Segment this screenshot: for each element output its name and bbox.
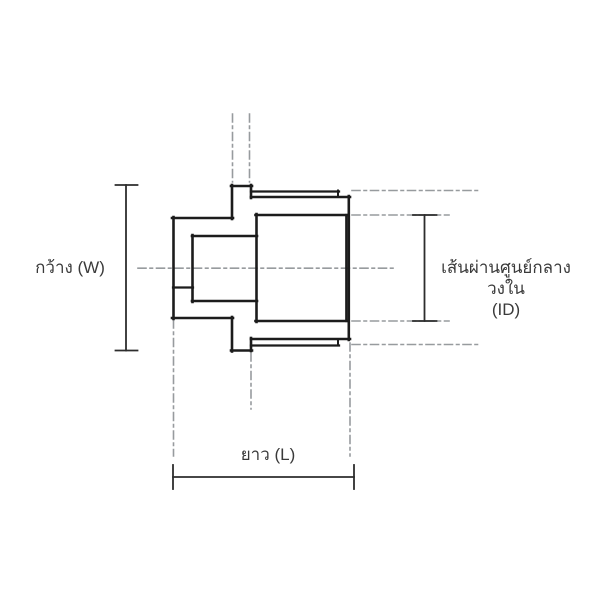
inner-diameter-label: เส้นผ่านศูนย์กลางวงใน (ID) xyxy=(424,257,588,320)
dimension-width xyxy=(116,185,138,351)
inner-diameter-label-line2: (ID) xyxy=(424,299,588,320)
inner-diameter-label-line1: เส้นผ่านศูนย์กลางวงใน xyxy=(424,257,588,299)
width-label: กว้าง (W) xyxy=(22,257,118,278)
dimension-length xyxy=(173,465,354,489)
length-label: ยาว (L) xyxy=(220,444,316,465)
diagram-page: กว้าง (W) เส้นผ่านศูนย์กลางวงใน (ID) ยาว… xyxy=(0,0,600,600)
